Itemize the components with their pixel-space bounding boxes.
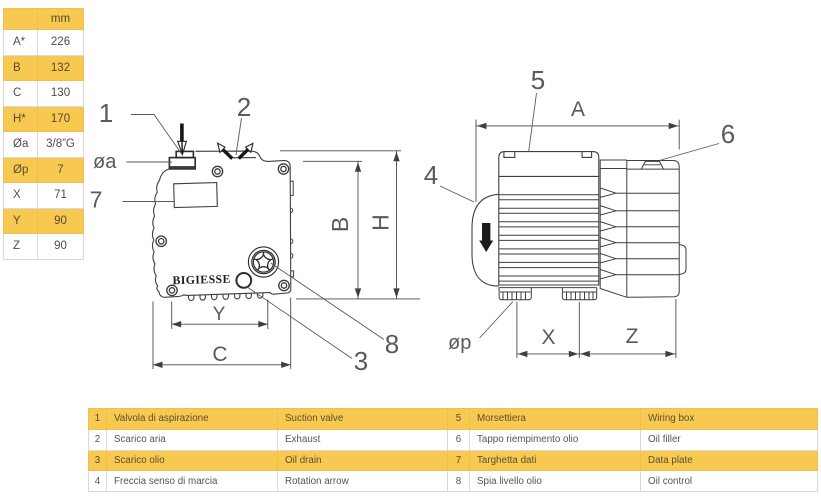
svg-text:øp: øp (448, 332, 471, 354)
svg-text:2: 2 (237, 92, 251, 122)
svg-text:3: 3 (354, 346, 368, 376)
svg-text:6: 6 (721, 119, 735, 149)
svg-text:C: C (212, 343, 227, 366)
svg-text:A: A (571, 98, 585, 121)
svg-text:X: X (541, 326, 555, 349)
svg-text:7: 7 (90, 187, 103, 213)
svg-text:øa: øa (93, 151, 117, 173)
svg-text:Z: Z (626, 325, 639, 348)
svg-text:5: 5 (531, 65, 545, 95)
svg-text:H: H (368, 214, 394, 231)
svg-text:Y: Y (213, 304, 226, 325)
svg-text:B: B (327, 217, 353, 232)
svg-text:BIGIESSE: BIGIESSE (172, 272, 231, 288)
svg-text:8: 8 (385, 329, 399, 359)
svg-text:4: 4 (424, 160, 438, 190)
svg-text:1: 1 (99, 98, 113, 128)
